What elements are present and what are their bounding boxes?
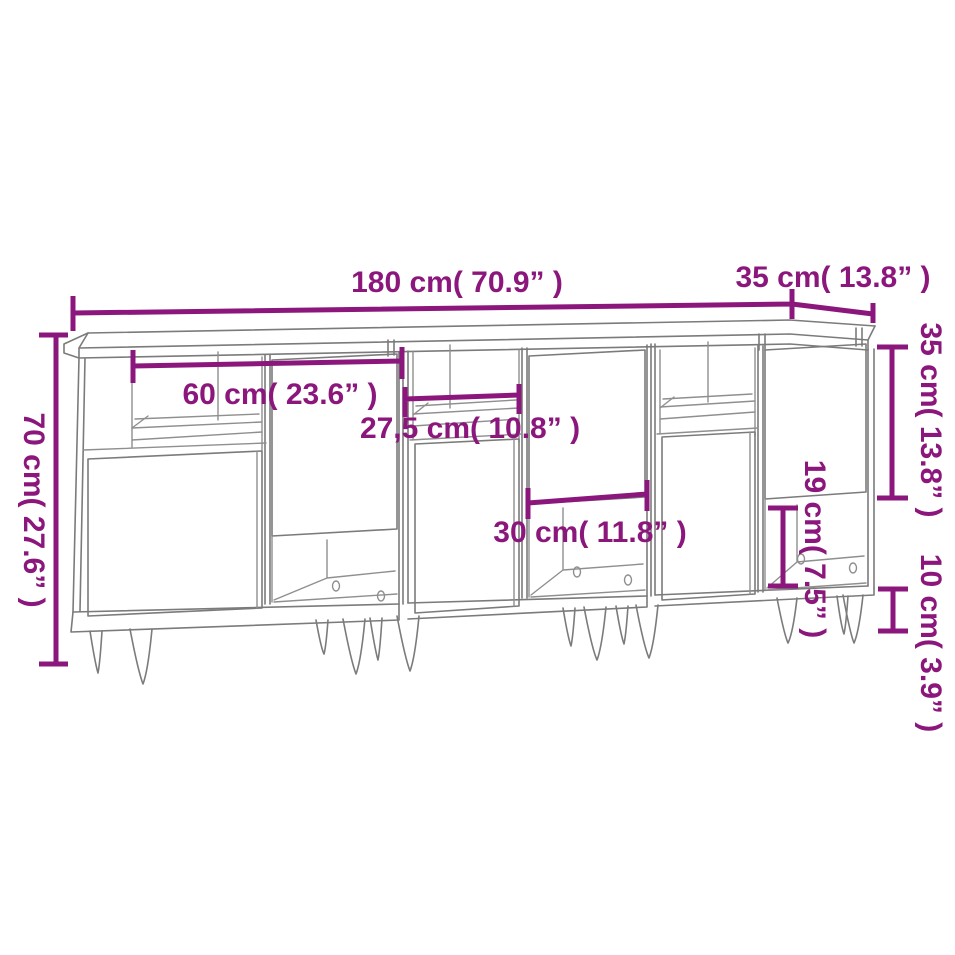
dimension-label-leg-height: 10 cm( 3.9” ): [914, 554, 947, 732]
sideboard-set-drawing: [64, 320, 875, 684]
open-shelf-niche: [657, 342, 758, 436]
dimension-label-compartment-height: 19 cm( 7.5” ): [798, 460, 831, 638]
side-panels-gap-2: [651, 344, 655, 596]
open-compartment: [272, 536, 397, 602]
dimension-label-compartment-width: 30 cm( 11.8” ): [493, 516, 686, 549]
dimension-label-door-height: 35 cm( 13.8” ): [914, 322, 947, 517]
dimension-label-total-width: 180 cm( 70.9” ): [351, 266, 563, 299]
hairpin-legs-middle-unit: [370, 607, 606, 671]
dimension-label-unit-width: 60 cm( 23.6” ): [182, 378, 377, 411]
dim-door-height: 35 cm( 13.8” ): [877, 322, 947, 517]
dim-shelf-width: 27,5 cm( 10.8” ): [360, 384, 580, 445]
sideboard-diagram-canvas: 180 cm( 70.9” ) 35 cm( 13.8” ) 70 cm( 27…: [0, 0, 955, 955]
hairpin-legs-left-unit: [90, 619, 365, 684]
dimension-label-depth: 35 cm( 13.8” ): [735, 261, 930, 294]
dimension-label-height: 70 cm( 27.6” ): [17, 412, 50, 607]
dim-leg-height: 10 cm( 3.9” ): [878, 554, 947, 732]
dim-height: 70 cm( 27.6” ): [17, 335, 68, 664]
dim-depth: 35 cm( 13.8” ): [735, 261, 930, 323]
dim-compartment-height: 19 cm( 7.5” ): [768, 460, 831, 638]
top-board: [64, 320, 875, 358]
door-left: [88, 451, 262, 616]
product-dimension-diagram: 180 cm( 70.9” ) 35 cm( 13.8” ) 70 cm( 27…: [0, 0, 955, 955]
dimension-label-shelf-width: 27,5 cm( 10.8” ): [360, 412, 580, 445]
